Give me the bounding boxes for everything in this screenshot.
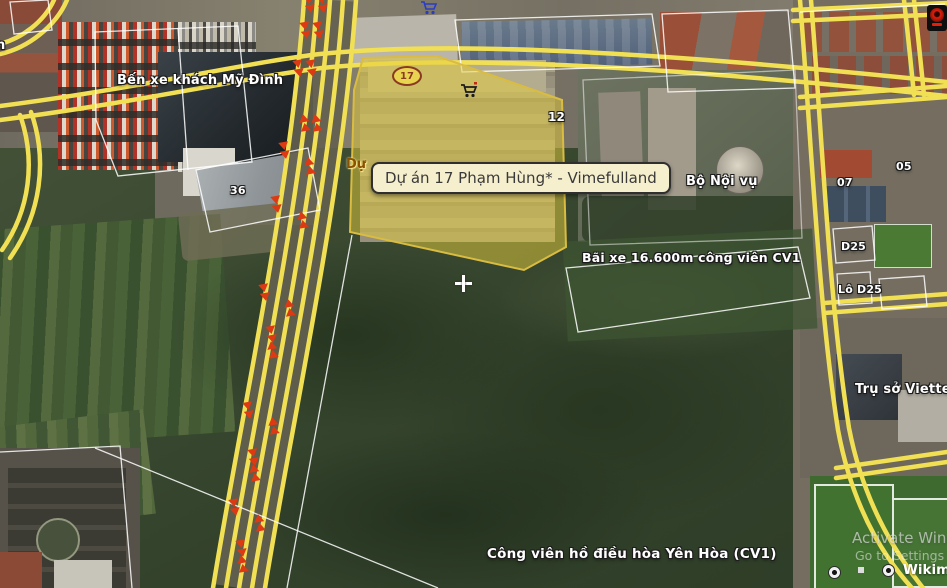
red-roof-block [0, 0, 62, 132]
crosshair-bar [462, 275, 465, 292]
white-building-small [54, 560, 112, 588]
place-label-viettel[interactable]: Trụ sở Viettel [855, 382, 947, 397]
warehouse-roof [351, 14, 458, 64]
cv1-parking-grass [563, 229, 818, 342]
windows-activation-watermark-line1: Activate Windows [852, 529, 947, 547]
soccer-ball-icon [882, 564, 895, 577]
mini-football-pitch [874, 224, 932, 268]
map-center-crosshair [455, 275, 472, 292]
lot-marker-36[interactable]: 36 [230, 184, 246, 197]
soccer-ball-icon [828, 566, 841, 579]
lot-marker-12[interactable]: 12 [548, 110, 565, 124]
place-label-yen-hoa-park[interactable]: Công viên hồ điều hòa Yên Hòa (CV1) [487, 546, 777, 562]
lot-marker-d25[interactable]: D25 [841, 240, 866, 253]
viettel-light-building [898, 390, 947, 442]
place-tooltip: Dự án 17 Phạm Hùng* - Vimefulland [371, 162, 671, 194]
project-label-partial: Dự [346, 157, 366, 172]
place-label-bus-station[interactable]: Bến xe khách Mỹ Đình [117, 73, 283, 88]
place-label-clipped: n [0, 38, 5, 53]
lot-marker-05[interactable]: 05 [896, 160, 912, 173]
red-roof-small [0, 552, 42, 588]
apartment-row [802, 12, 947, 52]
apartment-row [812, 56, 947, 94]
windows-activation-watermark-line2: Go to Settings to activate Windows [855, 548, 947, 563]
red-court [820, 150, 872, 178]
garden-circle [36, 518, 80, 562]
place-label-ministry[interactable]: Bộ Nội vụ [686, 174, 758, 189]
map-canvas[interactable]: Bến xe khách Mỹ Đình Bộ Nội vụ Bãi xe 16… [0, 0, 947, 588]
blue-courts [826, 186, 886, 222]
webcam-lens [930, 8, 944, 22]
dark-tower-roof [158, 52, 313, 162]
woodland-shade [230, 430, 660, 588]
lot-marker-lo-d25[interactable]: Lô D25 [838, 283, 882, 296]
webcam-icon[interactable] [927, 5, 947, 31]
lot-badge-17[interactable]: 17 [392, 66, 422, 86]
wikimapia-logo[interactable]: Wikimapia [903, 562, 947, 578]
lot-marker-07[interactable]: 07 [837, 176, 853, 189]
webcam-base [932, 23, 942, 26]
mixed-roof-block [660, 12, 790, 70]
place-label-parking-cv1[interactable]: Bãi xe 16.600m công viên CV1 [582, 250, 801, 265]
field-marker [858, 567, 864, 573]
